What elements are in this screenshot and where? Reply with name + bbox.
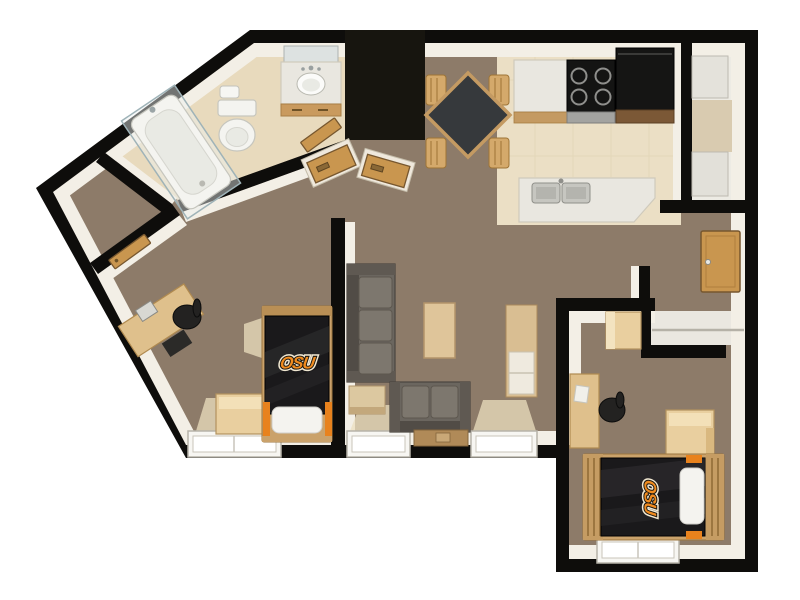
toilet-paper-roll — [220, 86, 239, 98]
floor-plan-rendering: OSU OSU — [0, 0, 800, 600]
bed-accent-right — [325, 402, 332, 436]
bedroom2-window — [597, 537, 679, 563]
footboard-rails — [706, 454, 724, 540]
base-cabinet — [616, 110, 674, 123]
dining-chair — [426, 138, 446, 168]
bedroom2-desk — [570, 374, 599, 448]
headboard-rails — [583, 454, 603, 540]
refrigerator — [616, 48, 674, 123]
utility-appliance-lower — [692, 152, 728, 196]
floor-plan-canvas: OSU OSU — [0, 0, 800, 600]
living-window-right — [471, 431, 537, 457]
loveseat — [390, 382, 470, 432]
oven-handle — [567, 112, 615, 123]
osu-logo-bedroom2: OSU OSU — [641, 479, 660, 517]
console-table — [414, 430, 468, 446]
svg-text:OSU: OSU — [641, 479, 660, 517]
bookshelf — [506, 305, 537, 397]
svg-text:OSU: OSU — [279, 354, 317, 373]
end-table — [349, 386, 385, 414]
utility-closet — [692, 56, 732, 196]
osu-logo-bedroom1: OSU OSU — [279, 354, 317, 373]
coat-closet-south-wall — [641, 345, 726, 358]
door-handle-icon — [706, 260, 711, 265]
front-door — [701, 231, 740, 292]
coat-closet-floor — [651, 311, 745, 345]
paper — [574, 385, 589, 403]
bedroom2-west-wall — [556, 298, 569, 458]
faucet-icon — [559, 179, 564, 184]
pillow — [272, 407, 322, 433]
bed-accent-bottom — [686, 531, 702, 539]
bedroom2-wardrobe — [606, 312, 641, 349]
kitchen-counter — [514, 60, 567, 112]
entry-stub-wall — [639, 266, 650, 311]
peninsula-counter — [519, 178, 655, 222]
stove — [567, 60, 615, 123]
dining-area — [426, 73, 510, 168]
bedroom1-bed: OSU OSU — [262, 306, 332, 442]
bed-accent-top — [686, 455, 702, 463]
coffee-table — [424, 303, 455, 358]
living-bedroom1-wall — [331, 218, 345, 445]
sofa — [347, 264, 395, 382]
headboard — [262, 306, 332, 316]
entry-north-wall — [660, 200, 758, 213]
mirror — [284, 46, 338, 62]
pillow — [680, 468, 704, 524]
utility-appliance-upper — [692, 56, 728, 98]
bedroom1-dresser — [216, 394, 268, 434]
vanity-cabinet — [281, 104, 341, 116]
utility-west-wall — [681, 43, 692, 213]
counter-cabinet-front — [514, 112, 567, 123]
storage-chase — [345, 30, 425, 140]
living-window-left — [347, 431, 410, 457]
dining-chair — [489, 138, 509, 168]
bed-accent-left — [263, 402, 270, 436]
vanity-sink — [281, 46, 341, 116]
bedroom2-bed: OSU OSU — [583, 454, 724, 540]
